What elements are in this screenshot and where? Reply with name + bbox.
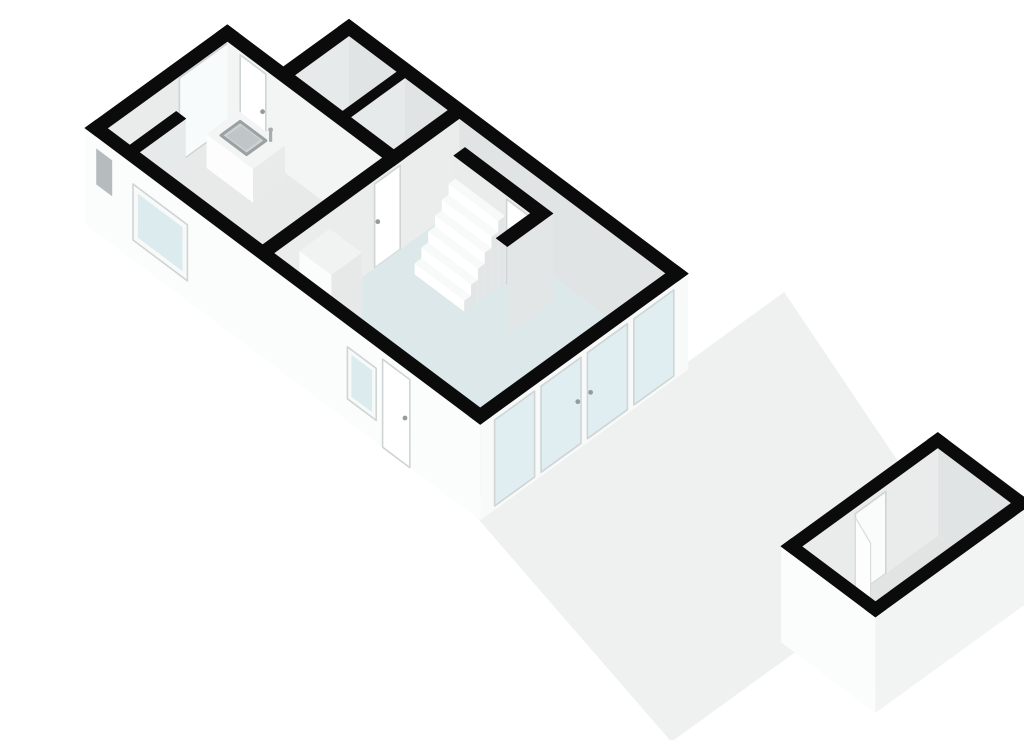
stair-tread-3-se-face	[478, 264, 485, 302]
glass-door-left-handle-icon	[575, 399, 580, 404]
stair-wall-end-face	[542, 214, 553, 310]
kitchen-door-handle-icon	[260, 109, 265, 114]
floor-plan-3d	[40, 16, 1024, 740]
sink-faucet	[268, 127, 273, 132]
partition-door-handle-icon	[375, 219, 380, 224]
floorplan-3d-view	[40, 16, 1024, 740]
stair-tread-4-se-face	[485, 248, 492, 297]
floorplan-scene	[40, 16, 1024, 740]
stair-tread-6-se-face	[498, 216, 505, 287]
glass-door-right-handle-icon	[588, 390, 593, 395]
stair-tread-5-se-face	[491, 232, 498, 292]
front-door-handle-icon	[403, 416, 408, 421]
